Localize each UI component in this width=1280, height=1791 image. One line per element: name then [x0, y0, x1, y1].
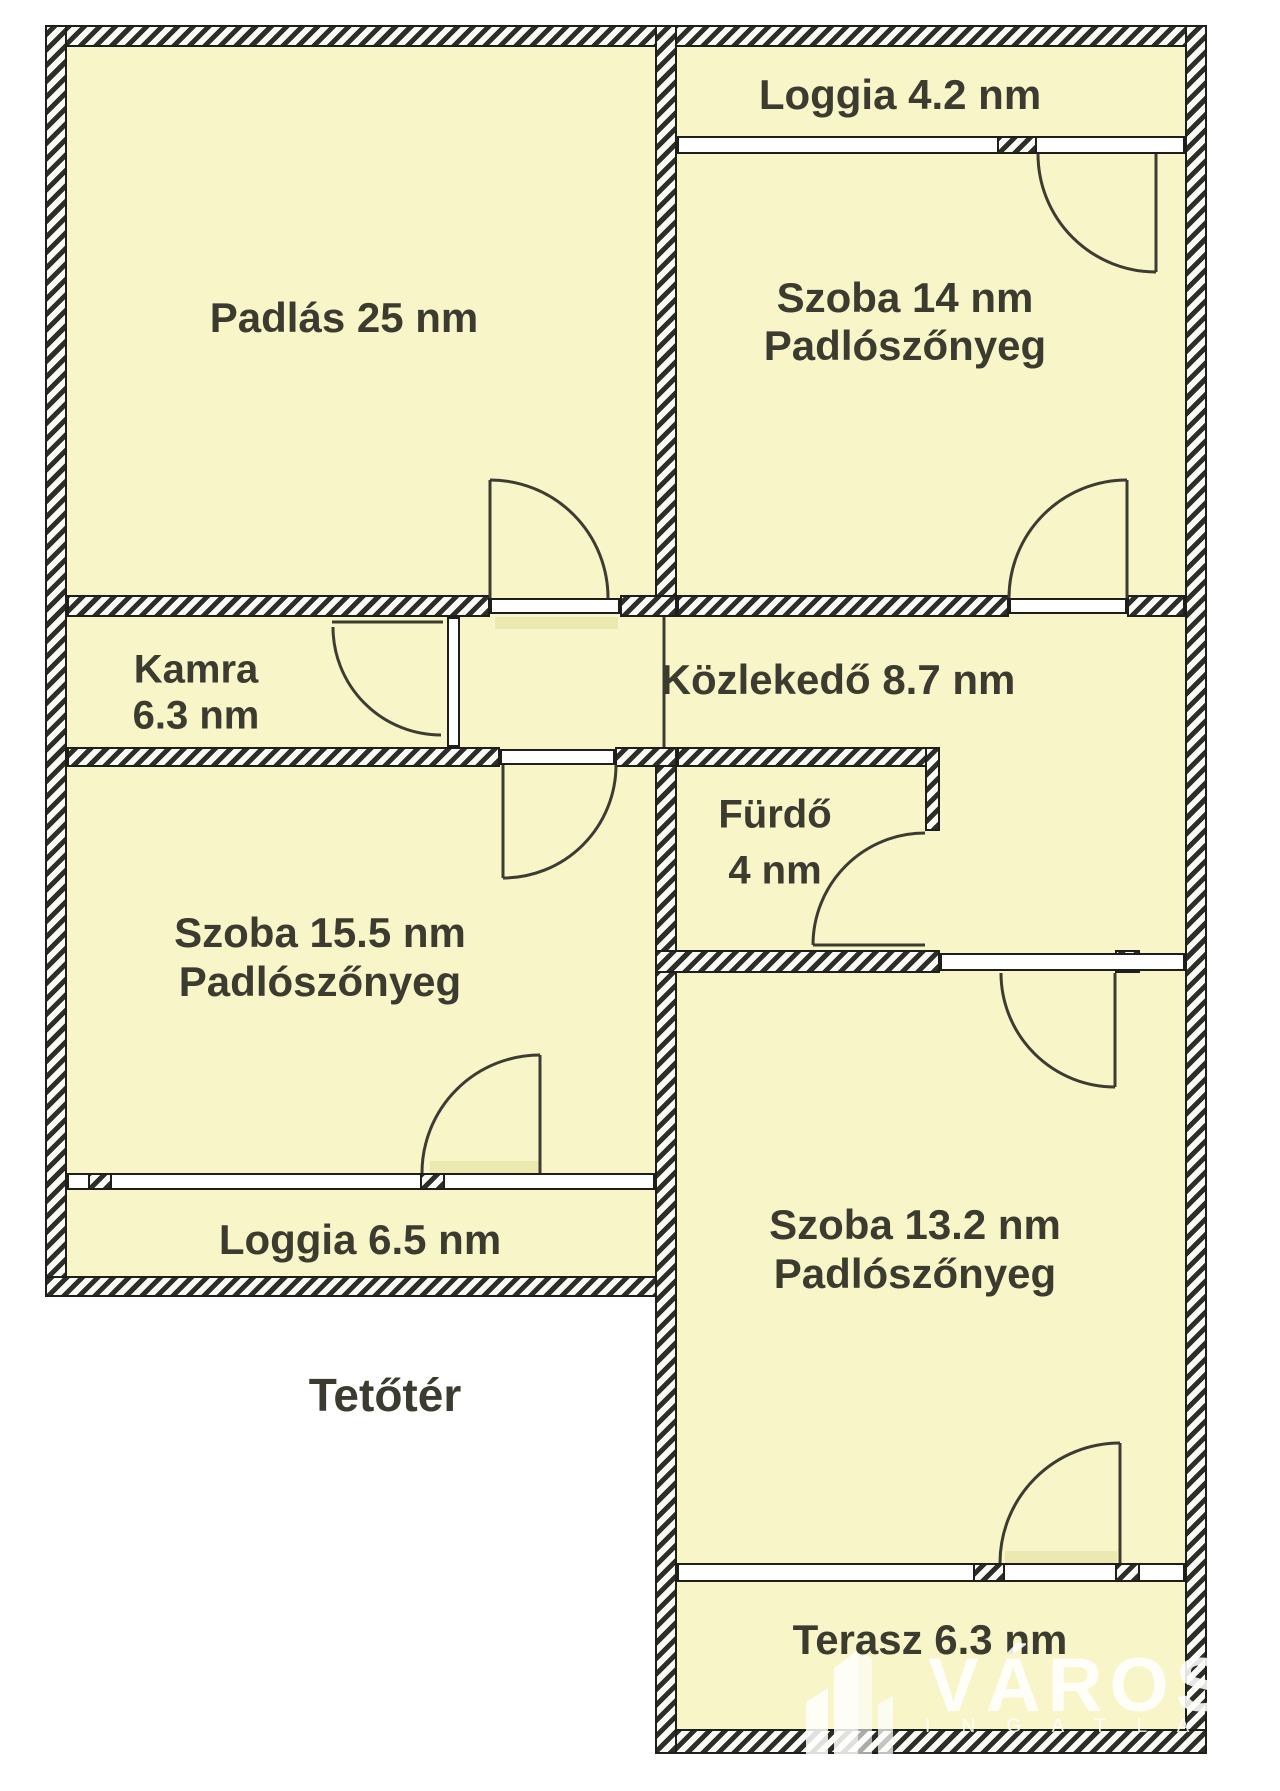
room-label-furdo-line2: 4 nm	[728, 849, 821, 894]
window-szoba132-terasz	[677, 1563, 1185, 1582]
room-label-szoba132-line1: Szoba 13.2 nm	[769, 1201, 1061, 1249]
floor-level-label: Tetőtér	[309, 1368, 462, 1422]
window-pier-loggia65-b	[420, 1173, 445, 1190]
window-loggia42	[677, 136, 1185, 154]
room-label-kamra-line2: 6.3 nm	[133, 694, 260, 739]
wall-kamra-vestibule	[447, 617, 460, 747]
opening-padlas-door	[490, 598, 620, 614]
wall-furdo-right-upper	[925, 747, 940, 831]
room-label-kozlekedo: Közlekedő 8.7 nm	[661, 656, 1016, 704]
door-shadow	[495, 617, 618, 629]
room-label-furdo-line1: Fürdő	[718, 793, 831, 838]
opening-szoba155-door	[500, 749, 615, 765]
wall-outer-top	[45, 25, 1207, 47]
wall-padlas-kamra	[67, 595, 490, 617]
floorplan-canvas: Padlás 25 nm Loggia 4.2 nm Szoba 14 nm P…	[0, 0, 1280, 1791]
room-label-szoba14-line1: Szoba 14 nm	[777, 274, 1034, 322]
window-kozlekedo-szoba132	[940, 953, 1185, 971]
wall-szoba14-kozlekedo	[677, 595, 1009, 617]
room-label-kamra-line1: Kamra	[134, 648, 259, 693]
room-label-szoba132-line2: Padlószőnyeg	[774, 1250, 1056, 1298]
watermark-subtitle-text: I N G A T L A N I R O D	[925, 1716, 1280, 1738]
room-label-szoba155-line1: Szoba 15.5 nm	[174, 909, 466, 957]
window-szoba155-loggia65	[67, 1173, 655, 1190]
wall-furdo-bottom	[655, 950, 940, 973]
room-label-loggia-42: Loggia 4.2 nm	[759, 71, 1041, 119]
wall-kamra-szoba155	[67, 747, 500, 767]
window-pier-loggia65-a	[88, 1173, 112, 1190]
room-label-szoba155-line2: Padlószőnyeg	[179, 958, 461, 1006]
room-label-padlas: Padlás 25 nm	[210, 294, 478, 342]
wall-szoba14-kozlekedo-stub	[1127, 595, 1185, 617]
room-label-szoba14-line2: Padlószőnyeg	[764, 322, 1046, 370]
wall-outer-bottom-left	[45, 1276, 677, 1297]
window-pier-terasz	[973, 1563, 1005, 1582]
terasz-door-jamb	[1115, 1563, 1140, 1582]
wall-outer-left	[45, 25, 67, 1297]
door-shadow	[1005, 1551, 1117, 1563]
wall-divider-upper	[655, 25, 677, 617]
opening-szoba14-door	[1009, 598, 1127, 614]
wall-furdo-top	[677, 747, 940, 767]
window-pier-loggia42	[997, 136, 1037, 154]
wall-szoba155-stub	[615, 747, 677, 767]
room-label-loggia-65: Loggia 6.5 nm	[219, 1216, 501, 1264]
wall-outer-right	[1185, 25, 1207, 1754]
wall-divider-lower	[655, 747, 677, 1754]
door-shadow	[430, 1161, 540, 1173]
wall-vestibule-top-stub	[620, 595, 677, 617]
